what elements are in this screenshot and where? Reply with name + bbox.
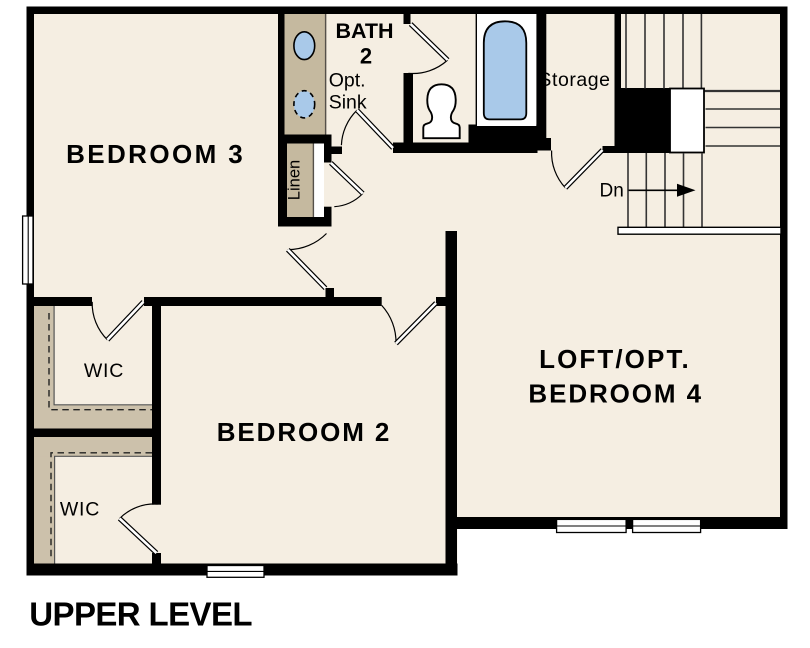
svg-text:Linen: Linen (286, 160, 304, 200)
svg-text:BEDROOM 4: BEDROOM 4 (528, 379, 703, 409)
svg-text:Storage: Storage (538, 69, 610, 91)
svg-text:WIC: WIC (60, 499, 100, 521)
svg-text:WIC: WIC (84, 360, 124, 382)
svg-text:Sink: Sink (329, 92, 367, 114)
svg-text:2: 2 (360, 43, 372, 68)
svg-text:BEDROOM 3: BEDROOM 3 (66, 139, 245, 169)
svg-text:Opt.: Opt. (329, 70, 366, 92)
svg-text:BATH: BATH (335, 19, 393, 43)
svg-text:UPPER LEVEL: UPPER LEVEL (29, 596, 252, 633)
svg-text:LOFT/OPT.: LOFT/OPT. (539, 344, 691, 374)
svg-text:BEDROOM 2: BEDROOM 2 (217, 417, 392, 447)
svg-text:Dn: Dn (600, 181, 624, 202)
